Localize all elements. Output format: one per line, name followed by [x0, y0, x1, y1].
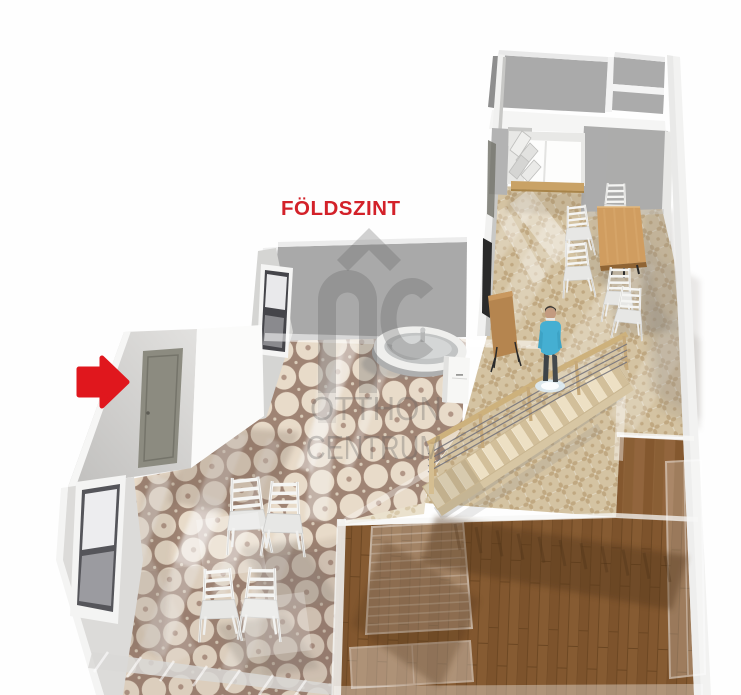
- svg-text:FÖLDSZINT: FÖLDSZINT: [281, 197, 401, 220]
- svg-text:CENTRUM: CENTRUM: [306, 429, 442, 466]
- svg-text:OTTHON: OTTHON: [310, 390, 442, 427]
